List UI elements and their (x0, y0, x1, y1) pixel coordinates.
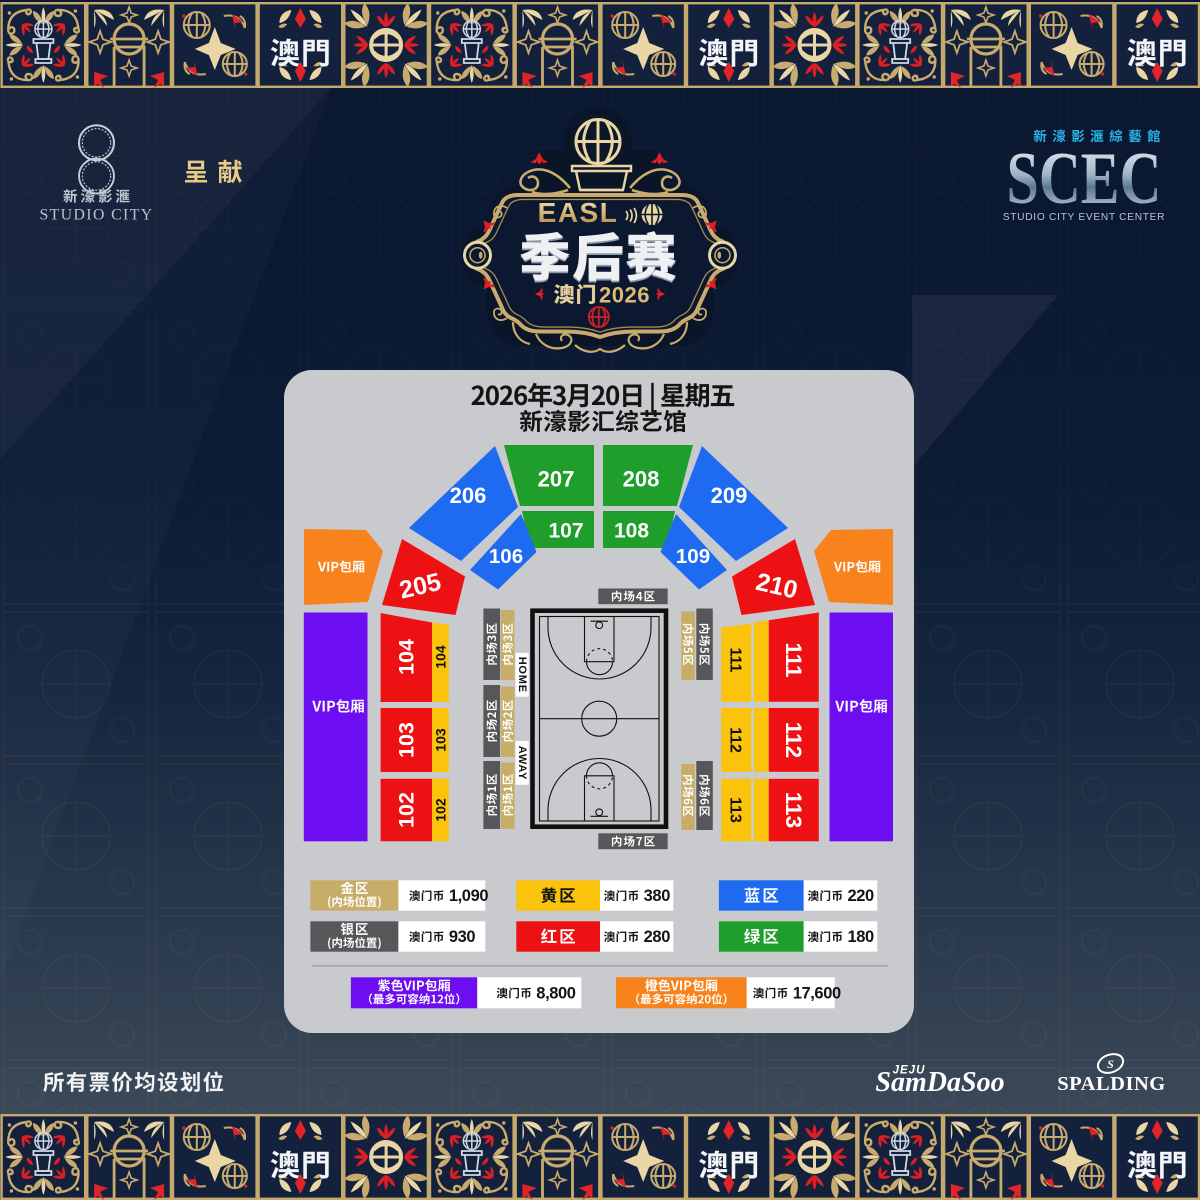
svg-text:102: 102 (395, 792, 419, 828)
svg-text:2026: 2026 (599, 283, 650, 308)
svg-text:102: 102 (432, 798, 448, 822)
svg-text:STUDIO CITY: STUDIO CITY (39, 207, 153, 224)
svg-text:111: 111 (781, 642, 806, 677)
svg-text:SCEC: SCEC (1007, 138, 1162, 220)
svg-text:HOME: HOME (516, 657, 528, 693)
svg-text:104: 104 (432, 645, 448, 669)
svg-text:107: 107 (548, 520, 583, 543)
svg-text:112: 112 (727, 727, 744, 753)
svg-text:209: 209 (711, 483, 748, 508)
svg-text:930: 930 (449, 928, 476, 946)
svg-text:109: 109 (676, 545, 710, 568)
svg-text:113: 113 (781, 792, 806, 828)
svg-text:SamDaSoo: SamDaSoo (875, 1067, 1004, 1098)
svg-text:208: 208 (623, 467, 660, 492)
svg-text:103: 103 (432, 728, 448, 752)
svg-text:1,090: 1,090 (449, 887, 489, 905)
svg-text:17,600: 17,600 (793, 984, 841, 1002)
svg-text:180: 180 (848, 928, 875, 946)
svg-text:207: 207 (538, 467, 575, 492)
svg-text:111: 111 (727, 648, 744, 673)
svg-text:8,800: 8,800 (536, 984, 576, 1002)
svg-text:SPALDING: SPALDING (1057, 1073, 1165, 1095)
svg-text:380: 380 (644, 887, 671, 905)
svg-text:280: 280 (644, 928, 671, 946)
svg-text:AWAY: AWAY (516, 746, 528, 781)
svg-text:113: 113 (727, 797, 744, 823)
svg-text:112: 112 (781, 722, 806, 758)
svg-text:206: 206 (450, 483, 487, 508)
svg-text:108: 108 (614, 520, 649, 543)
svg-text:106: 106 (489, 545, 523, 568)
svg-text:103: 103 (395, 722, 419, 758)
svg-text:220: 220 (848, 887, 875, 905)
svg-text:STUDIO CITY EVENT CENTER: STUDIO CITY EVENT CENTER (1003, 212, 1165, 223)
svg-text:EASL: EASL (538, 197, 619, 228)
svg-text:104: 104 (395, 639, 419, 675)
svg-text:S: S (1107, 1057, 1114, 1071)
